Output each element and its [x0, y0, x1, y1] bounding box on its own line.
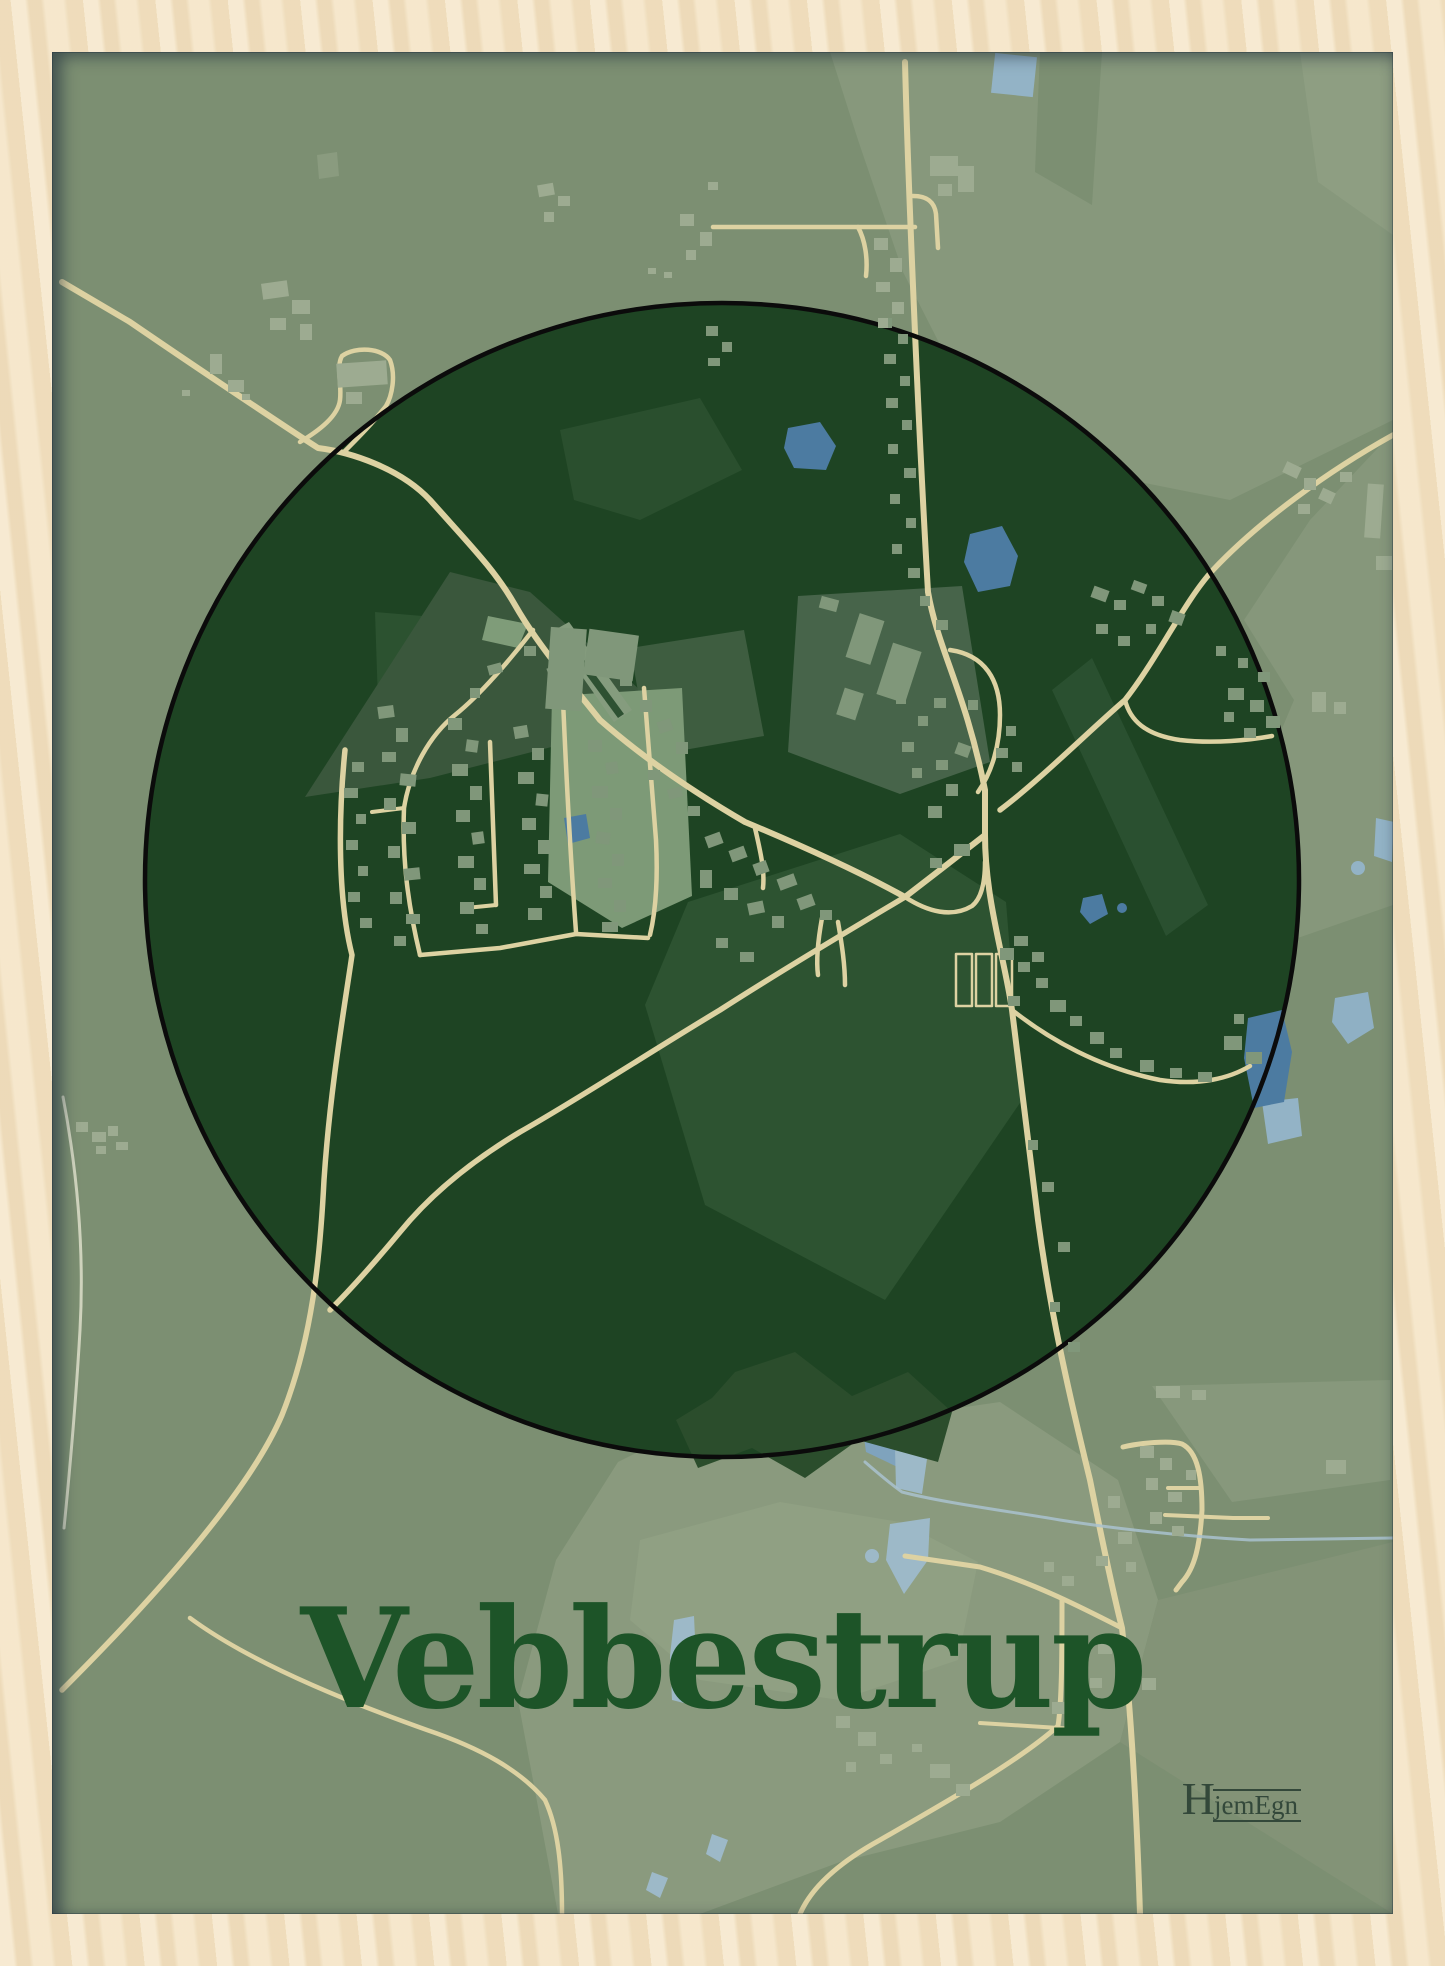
brand-logo: HjemEgn	[1182, 1778, 1301, 1822]
building-footprint	[1068, 1342, 1080, 1352]
building-footprint	[906, 518, 916, 528]
building-footprint	[1186, 1470, 1196, 1480]
building-footprint	[820, 910, 832, 920]
building-footprint	[912, 1744, 922, 1752]
framed-poster: Vebbestrup HjemEgn	[0, 0, 1445, 1966]
building-footprint	[1090, 1032, 1104, 1044]
building-footprint	[614, 900, 626, 912]
building-footprint	[1228, 688, 1244, 700]
building-footprint	[384, 798, 396, 810]
building-footprint	[399, 773, 416, 787]
building-footprint	[958, 166, 974, 192]
building-footprint	[1146, 1478, 1158, 1490]
building-footprint	[471, 831, 485, 845]
building-footprint	[890, 258, 902, 272]
building-footprint	[1118, 636, 1130, 646]
building-footprint	[583, 629, 639, 682]
building-footprint	[1250, 700, 1264, 712]
building-footprint	[708, 182, 718, 190]
building-footprint	[595, 831, 611, 845]
building-footprint	[648, 268, 656, 274]
building-footprint	[1146, 624, 1156, 634]
building-footprint	[896, 694, 906, 704]
building-footprint	[1058, 1242, 1070, 1252]
building-footprint	[92, 1132, 106, 1142]
building-footprint	[458, 856, 474, 868]
building-footprint	[1334, 702, 1346, 714]
map-poster: Vebbestrup HjemEgn	[52, 52, 1393, 1914]
building-footprint	[538, 840, 550, 854]
building-footprint	[358, 866, 368, 876]
building-footprint	[336, 360, 388, 387]
building-footprint	[954, 844, 970, 856]
building-footprint	[1118, 1532, 1132, 1544]
building-footprint	[912, 768, 922, 778]
building-footprint	[888, 444, 898, 454]
building-footprint	[1014, 936, 1028, 946]
building-footprint	[528, 908, 542, 920]
building-footprint	[1096, 1556, 1108, 1566]
building-footprint	[1044, 1562, 1054, 1572]
building-footprint	[708, 358, 720, 366]
building-footprint	[518, 772, 534, 784]
building-footprint	[664, 272, 672, 278]
building-footprint	[772, 916, 784, 928]
building-footprint	[394, 936, 406, 946]
building-footprint	[876, 282, 890, 292]
building-footprint	[96, 1146, 106, 1154]
building-footprint	[1156, 1386, 1180, 1398]
building-footprint	[1150, 1512, 1162, 1524]
building-footprint	[846, 1762, 856, 1772]
building-footprint	[1008, 996, 1020, 1006]
building-footprint	[890, 494, 900, 504]
building-footprint	[346, 840, 358, 850]
building-footprint	[676, 742, 688, 754]
building-footprint	[605, 761, 619, 775]
building-footprint	[1050, 1000, 1066, 1012]
building-footprint	[1028, 1140, 1038, 1150]
building-footprint	[1312, 692, 1326, 712]
building-footprint	[874, 238, 888, 250]
building-footprint	[892, 302, 904, 314]
building-footprint	[406, 914, 420, 924]
building-footprint	[465, 739, 479, 753]
building-footprint	[1246, 1052, 1262, 1064]
building-footprint	[724, 888, 738, 900]
building-footprint	[1006, 726, 1016, 736]
building-footprint	[228, 380, 244, 392]
building-footprint	[448, 718, 462, 730]
building-footprint	[930, 156, 958, 176]
building-footprint	[938, 184, 952, 196]
building-footprint	[522, 818, 536, 830]
building-footprint	[76, 1122, 88, 1132]
building-footprint	[700, 870, 712, 888]
building-footprint	[352, 762, 364, 772]
building-footprint	[390, 892, 402, 904]
building-footprint	[344, 788, 358, 798]
building-footprint	[558, 196, 570, 206]
building-footprint	[1000, 948, 1014, 960]
building-footprint	[1152, 596, 1164, 606]
building-footprint	[292, 300, 310, 314]
building-footprint	[1018, 962, 1030, 972]
building-footprint	[242, 394, 250, 400]
building-footprint	[884, 354, 896, 364]
building-footprint	[544, 212, 554, 222]
building-footprint	[934, 698, 946, 708]
building-footprint	[722, 342, 732, 352]
building-footprint	[930, 1764, 950, 1778]
brand-logo-rest: jemEgn	[1213, 1789, 1301, 1822]
building-footprint	[532, 748, 544, 760]
building-footprint	[930, 858, 942, 868]
building-footprint	[588, 740, 602, 752]
building-footprint	[640, 700, 652, 712]
building-footprint	[946, 784, 958, 796]
building-footprint	[476, 924, 488, 934]
building-footprint	[996, 748, 1008, 758]
building-footprint	[1114, 600, 1126, 610]
building-footprint	[902, 742, 914, 752]
building-footprint	[880, 1754, 892, 1764]
building-footprint	[598, 878, 612, 888]
building-footprint	[908, 568, 920, 578]
building-footprint	[592, 786, 608, 798]
town-name-title: Vebbestrup	[52, 1590, 1393, 1728]
building-footprint	[1224, 1036, 1242, 1050]
building-footprint	[928, 806, 942, 818]
building-footprint	[270, 318, 286, 330]
building-footprint	[1340, 472, 1352, 482]
building-footprint	[360, 918, 372, 928]
building-footprint	[1238, 658, 1248, 668]
building-footprint	[1140, 1060, 1154, 1072]
building-footprint	[1168, 1492, 1182, 1502]
building-footprint	[108, 1126, 118, 1136]
building-footprint	[612, 854, 624, 866]
building-footprint	[1108, 1496, 1120, 1508]
building-footprint	[892, 544, 902, 554]
building-footprint	[688, 806, 700, 816]
building-footprint	[886, 398, 898, 408]
building-footprint	[1376, 556, 1392, 570]
building-footprint	[388, 846, 400, 858]
building-footprint	[540, 886, 552, 898]
building-footprint	[470, 688, 480, 698]
building-footprint	[936, 620, 948, 630]
building-footprint	[382, 752, 396, 762]
building-footprint	[182, 390, 190, 396]
building-footprint	[968, 700, 978, 710]
building-footprint	[470, 786, 482, 800]
building-footprint	[1042, 1182, 1054, 1192]
building-footprint	[610, 808, 622, 820]
building-footprint	[1160, 1458, 1172, 1470]
building-footprint	[898, 334, 908, 344]
building-footprint	[1126, 1562, 1136, 1572]
building-footprint	[602, 922, 618, 932]
building-footprint	[1198, 1072, 1212, 1082]
building-footprint	[900, 376, 910, 386]
building-footprint	[1140, 1446, 1154, 1458]
building-footprint	[686, 250, 696, 260]
building-footprint	[648, 770, 660, 780]
building-footprint	[356, 814, 366, 824]
building-footprint	[1096, 624, 1108, 634]
building-footprint	[918, 716, 928, 726]
building-footprint	[452, 764, 468, 776]
building-footprint	[513, 725, 529, 739]
building-footprint	[524, 646, 536, 656]
building-footprint	[1070, 1016, 1082, 1026]
building-footprint	[1224, 712, 1234, 722]
building-footprint	[902, 420, 912, 430]
building-footprint	[920, 596, 930, 606]
building-footprint	[706, 326, 718, 336]
building-footprint	[1012, 762, 1022, 772]
building-footprint	[474, 878, 486, 890]
building-footprint	[1304, 478, 1316, 490]
building-footprint	[956, 1784, 970, 1796]
building-footprint	[396, 728, 408, 742]
building-footprint	[535, 793, 548, 806]
building-footprint	[878, 318, 888, 328]
building-footprint	[1192, 1390, 1206, 1400]
building-footprint	[740, 952, 754, 962]
building-footprint	[1110, 1048, 1122, 1058]
building-footprint	[402, 822, 416, 834]
building-footprint	[348, 892, 360, 902]
building-footprint	[936, 760, 948, 770]
building-footprint	[1216, 646, 1226, 656]
building-footprint	[1032, 952, 1044, 962]
building-footprint	[1234, 1014, 1244, 1024]
building-footprint	[904, 468, 916, 478]
building-footprint	[1258, 672, 1270, 682]
building-footprint	[1244, 728, 1256, 738]
building-footprint	[456, 810, 470, 822]
building-footprint	[716, 938, 728, 948]
building-footprint	[1326, 1460, 1346, 1474]
building-footprint	[545, 627, 587, 711]
building-footprint	[700, 232, 712, 246]
building-footprint	[300, 324, 312, 340]
building-footprint	[403, 867, 420, 881]
building-footprint	[1170, 1068, 1182, 1078]
building-footprint	[377, 705, 395, 719]
building-footprint	[346, 392, 362, 404]
building-footprint	[524, 864, 540, 874]
building-footprint	[1172, 1526, 1184, 1536]
building-footprint	[1050, 1302, 1060, 1312]
building-footprint	[1298, 504, 1310, 514]
building-footprint	[1266, 716, 1280, 728]
building-footprint	[210, 354, 222, 374]
building-footprint	[116, 1142, 128, 1150]
building-footprint	[680, 214, 694, 226]
building-footprint	[1036, 978, 1048, 988]
building-footprint	[460, 902, 474, 914]
brand-logo-initial: H	[1182, 1773, 1215, 1824]
